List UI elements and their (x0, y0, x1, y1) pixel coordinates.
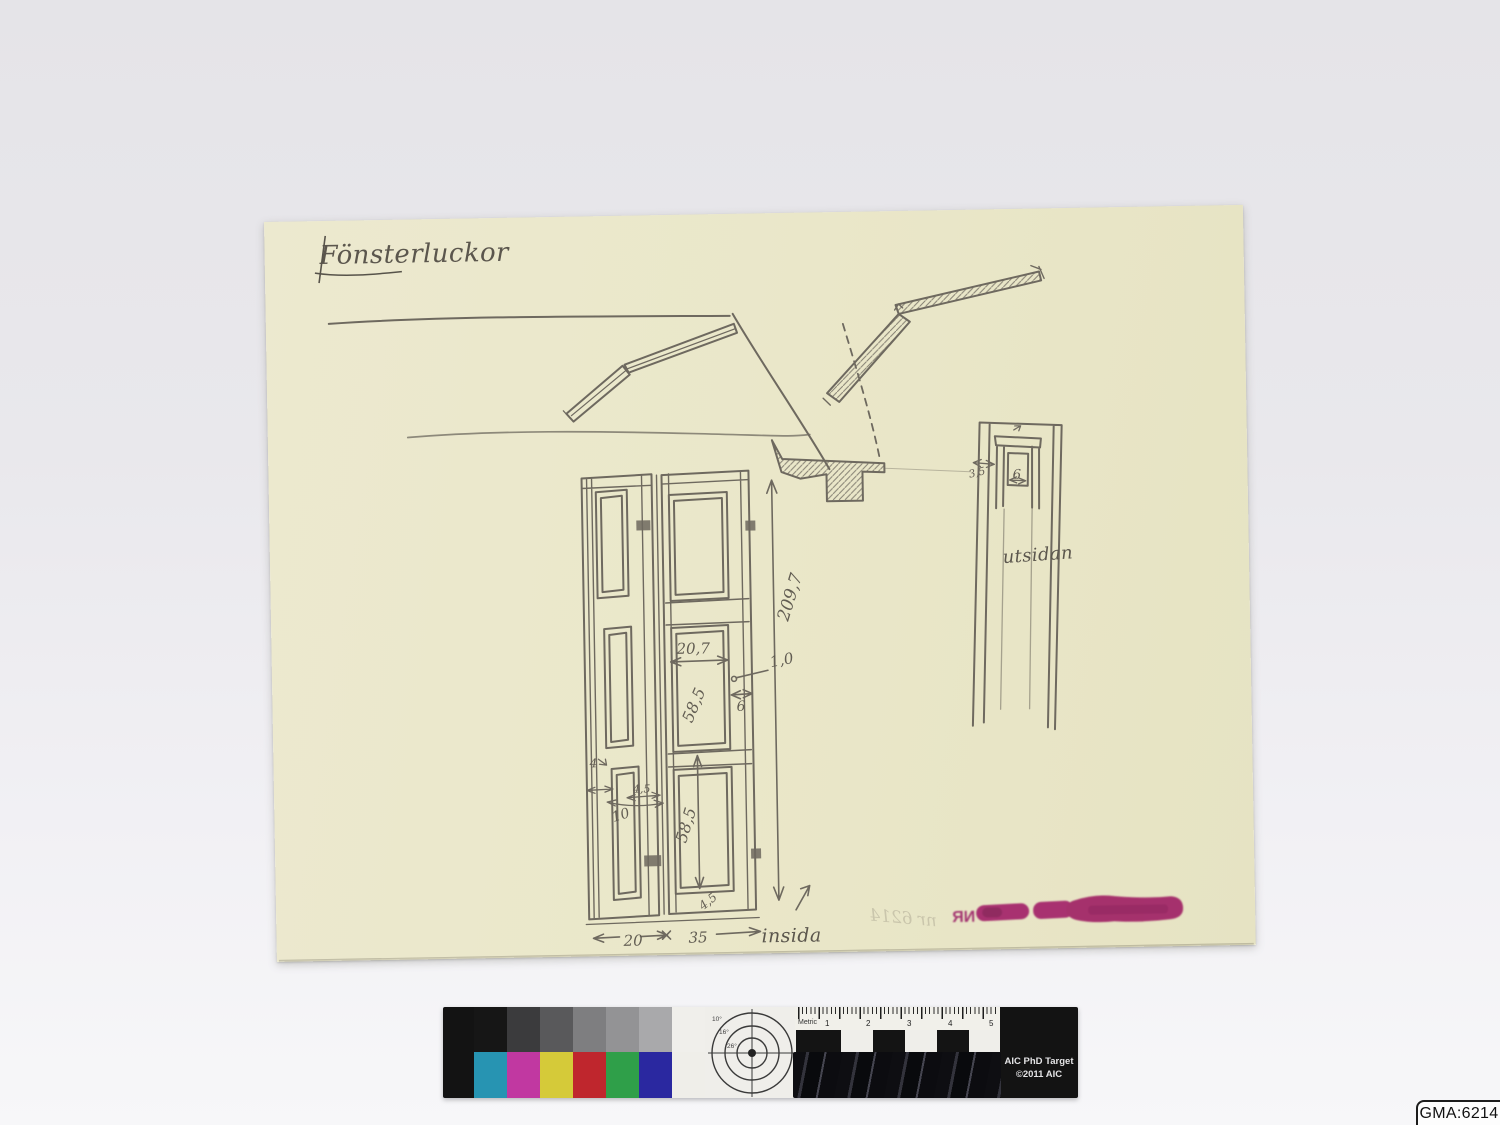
dim-frame-edge: 4 (588, 756, 597, 770)
calibration-target: 10° 16° 26° Metric 12345 AIC PhD Target … (443, 1007, 1078, 1098)
wall-sill-section (772, 438, 885, 502)
wall-line-bottom (408, 427, 810, 442)
color-swatch (672, 1052, 705, 1098)
archive-number-label: GMA:6214 (1416, 1100, 1500, 1125)
leaf-2-detail (627, 329, 736, 369)
dim-line-total-height (767, 480, 784, 900)
archive-number-text: GMA:6214 (1420, 1105, 1499, 1123)
bullseye-icon: 10° 16° 26° (705, 1007, 795, 1098)
dim-gap: 1,0 (768, 649, 795, 671)
gray-swatch (540, 1007, 573, 1052)
checkerboard-patches (795, 1030, 1000, 1052)
bullseye-center (748, 1049, 756, 1057)
gray-swatch (474, 1007, 507, 1052)
dim-mid-panel: 58,5 (678, 685, 709, 725)
open-shutter-leaf-2 (624, 324, 738, 373)
reveal-line (733, 312, 830, 471)
target-title: AIC PhD Target (1000, 1056, 1078, 1068)
right-panel-top (669, 492, 729, 601)
color-swatch (573, 1052, 606, 1098)
circle-label-1: 10° (712, 1015, 722, 1023)
dim-panel-width: 20,7 (675, 639, 710, 658)
color-swatch (474, 1052, 507, 1098)
arrow-left-leaf (593, 934, 619, 942)
wall-line-top (329, 313, 730, 324)
color-swatch (606, 1052, 639, 1098)
dim-stile: 6 (736, 699, 745, 715)
elevation-sketch (578, 470, 762, 924)
gray-swatch (606, 1007, 639, 1052)
title-underline (315, 272, 402, 276)
dim-line-frame (587, 786, 613, 793)
gray-swatch (573, 1007, 606, 1052)
hatched-leaf-2 (895, 271, 1042, 314)
gray-swatch (672, 1007, 705, 1052)
ruler-number: 4 (948, 1019, 952, 1028)
photo-background: Fönsterluckor (0, 0, 1500, 1125)
dim-lower-panel: 58,5 (672, 805, 701, 845)
sketch-title-group: Fönsterluckor (314, 233, 510, 283)
dim-right-leaf: 35 (688, 928, 707, 946)
metric-ruler: Metric 12345 (795, 1007, 1000, 1030)
stamp-mirrored-nr: NR (952, 909, 976, 926)
color-swatch (639, 1052, 672, 1098)
ruler-number: 3 (907, 1019, 911, 1028)
jamb-detail-labels: 6 3,5 utsidan (967, 464, 1073, 569)
gray-swatch (639, 1007, 672, 1052)
ruler-number: 2 (866, 1019, 870, 1028)
gray-swatch-row (474, 1007, 705, 1052)
dim-small-width: 4,5 (632, 782, 651, 795)
dim-total-height: 209,7 (773, 571, 807, 625)
left-panel-mid (604, 627, 633, 748)
ruler-label: Metric (798, 1019, 817, 1026)
label-inside: insida (761, 924, 821, 947)
color-swatch (540, 1052, 573, 1098)
hatched-leaf-1 (826, 314, 912, 402)
left-panel-top (596, 490, 629, 599)
color-swatch (507, 1052, 540, 1098)
ruler-number: 5 (989, 1019, 993, 1028)
dim-line-stile (731, 690, 752, 699)
jamb-inner-lines (997, 509, 1035, 710)
jamb-top-tick (1014, 426, 1021, 431)
stamp-pencil-note: nr 6214 (868, 906, 937, 932)
leaf-1-detail (563, 371, 627, 419)
sketch-title: Fönsterluckor (318, 238, 510, 271)
stamp-bleedthrough: nr 6214 NR (868, 894, 1183, 932)
resolution-target: 10° 16° 26° (705, 1007, 795, 1098)
dim-detail-opening: 6 (1012, 467, 1021, 483)
tick-frame-edge (598, 759, 606, 765)
dim-left-leaf: 20 (622, 931, 643, 949)
construction-line (884, 467, 970, 474)
target-copyright: ©2011 AIC (1000, 1069, 1078, 1081)
gloss-black-patch (793, 1052, 1001, 1098)
stamp-ink-blobs (976, 894, 1184, 924)
gray-swatch (507, 1007, 540, 1052)
arrow-right-leaf (716, 927, 760, 936)
inside-direction-arrow (796, 886, 810, 910)
color-swatch-row (474, 1052, 705, 1098)
label-outside: utsidan (1002, 542, 1074, 568)
arrow-divider (640, 931, 670, 940)
circle-label-3: 26° (727, 1042, 737, 1050)
leader-dot (732, 676, 737, 681)
sketch-paper: Fönsterluckor (264, 205, 1256, 962)
circle-label-2: 16° (719, 1028, 729, 1036)
left-leaf-stiles (581, 475, 659, 918)
dim-detail-depth: 3,5 (968, 465, 987, 481)
ruler-number: 1 (825, 1019, 829, 1028)
pencil-sketch: Fönsterluckor (264, 205, 1256, 962)
